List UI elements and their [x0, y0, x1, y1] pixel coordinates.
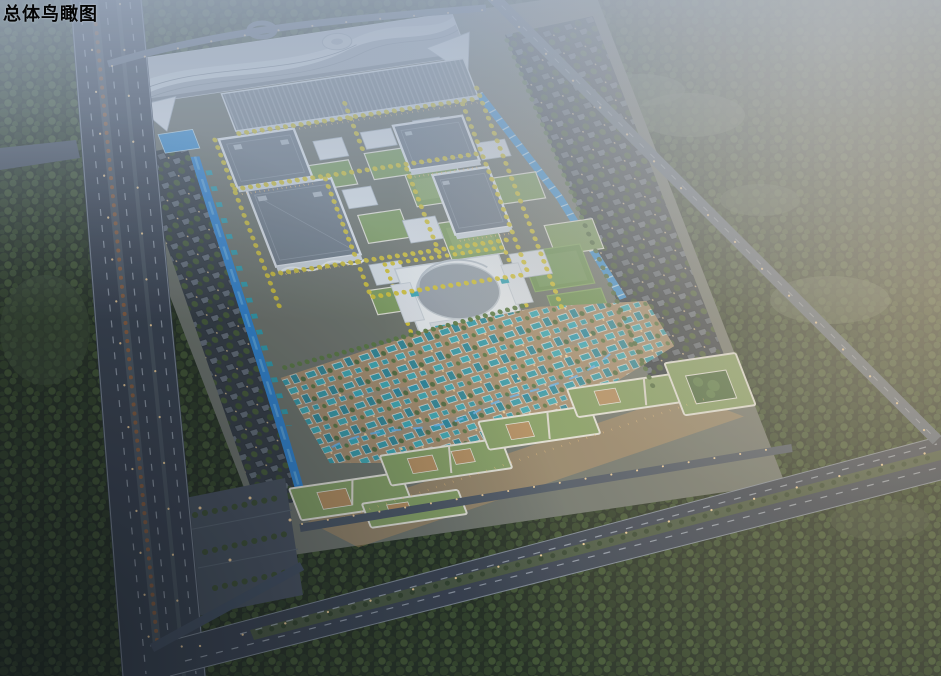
aerial-rendering: 总体鸟瞰图: [0, 0, 941, 676]
atmosphere-haze: [0, 0, 941, 676]
page-title: 总体鸟瞰图: [3, 0, 98, 26]
rendering-canvas: [0, 0, 941, 676]
